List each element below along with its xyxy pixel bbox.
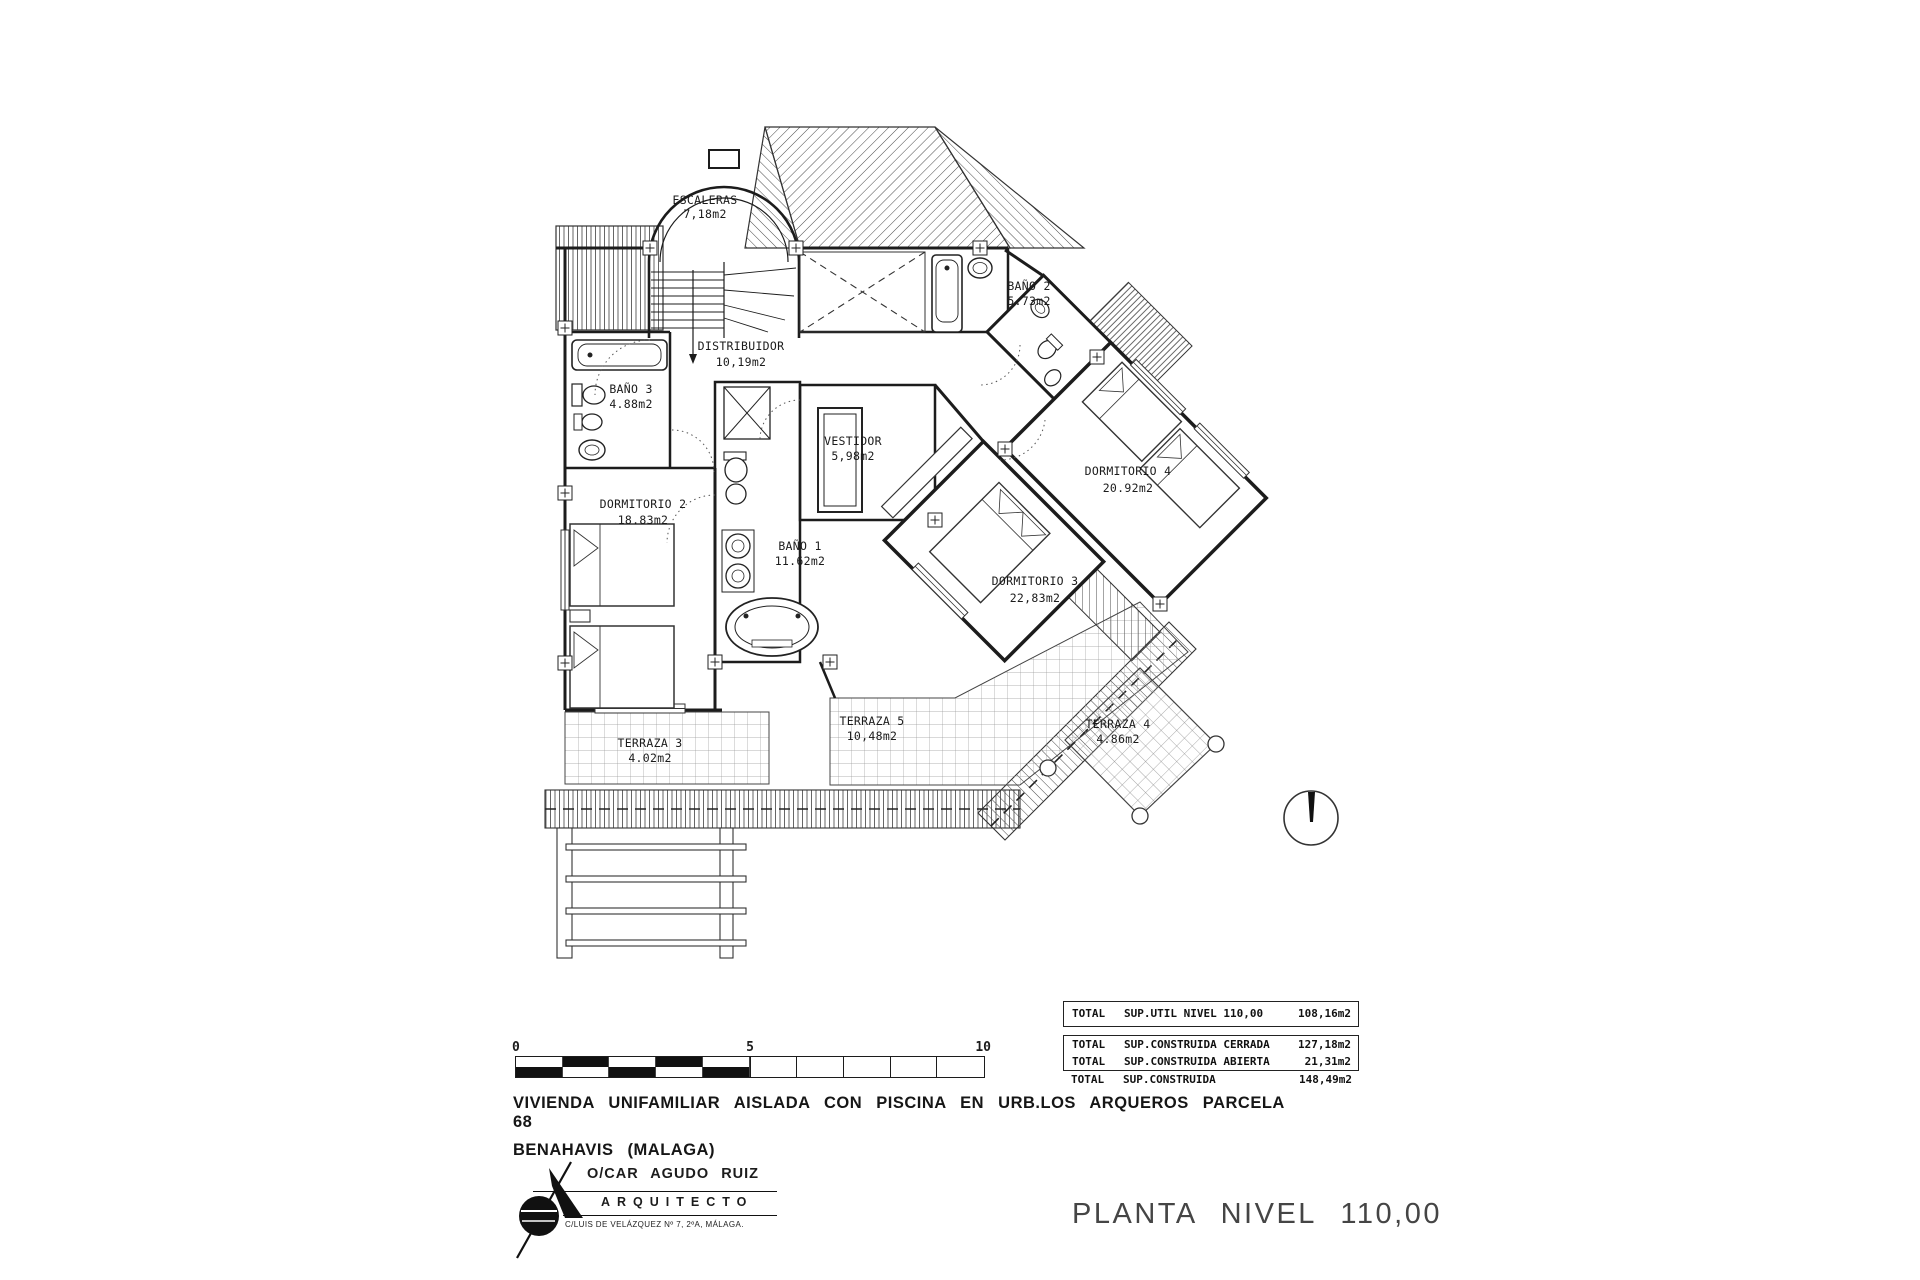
- sink-hall: [968, 258, 992, 278]
- void-opening: [800, 252, 925, 332]
- room-label-distribuidor: DISTRIBUIDOR: [698, 339, 785, 353]
- room-label-dormitorio-4: DORMITORIO 4: [1085, 464, 1172, 478]
- svg-text:5,98m2: 5,98m2: [831, 449, 874, 463]
- svg-text:10,48m2: 10,48m2: [847, 729, 898, 743]
- room-label-terraza-3: TERRAZA 3: [617, 736, 682, 750]
- scale-tick-0: 0: [512, 1040, 520, 1055]
- bathtub-hall: [932, 255, 962, 332]
- scale-bar: 0 5 10: [515, 1040, 985, 1090]
- sheet-title: PLANTA NIVEL 110,00: [1072, 1198, 1442, 1231]
- table-row: TOTAL SUP.CONSTRUIDA ABIERTA 21,31m2: [1064, 1053, 1358, 1070]
- room-label-dormitorio-2: DORMITORIO 2: [600, 497, 687, 511]
- architect-address: C/LUIS DE VELÁZQUEZ Nº 7, 2ºA, MÁLAGA.: [565, 1220, 744, 1229]
- north-indicator-icon: [1284, 791, 1338, 845]
- table-row: TOTAL SUP.UTIL NIVEL 110,00 108,16m2: [1064, 1002, 1358, 1026]
- dormitorio-2-beds: [570, 524, 674, 708]
- scale-bar-numbers: 0 5 10: [515, 1040, 985, 1056]
- room-label-escaleras: ESCALERAS: [672, 193, 737, 207]
- scale-tick-5: 5: [746, 1040, 754, 1055]
- svg-text:18.83m2: 18.83m2: [618, 513, 669, 527]
- drawing-sheet: { "plan": { "rooms": [ {"id":"escaleras"…: [0, 0, 1920, 1280]
- room-label-terraza-4: TERRAZA 4: [1085, 717, 1150, 731]
- table-row: TOTAL SUP.CONSTRUIDA CERRADA 127,18m2: [1064, 1036, 1358, 1053]
- hip-roof: [745, 127, 1084, 248]
- architect-role: ARQUITECTO: [601, 1195, 753, 1209]
- floor-plan-svg: ESCALERAS 7,18m2 DISTRIBUIDOR 10,19m2 BA…: [500, 100, 1380, 980]
- svg-text:11.62m2: 11.62m2: [775, 554, 826, 568]
- room-label-bano-2: BAÑO 2: [1007, 278, 1050, 293]
- scale-bar-graphic: [515, 1056, 985, 1078]
- room-label-bano-1: BAÑO 1: [778, 538, 821, 553]
- svg-text:4.86m2: 4.86m2: [1096, 732, 1139, 746]
- scale-tick-10: 10: [975, 1040, 991, 1055]
- scale-bar-checker: [516, 1057, 750, 1077]
- pergola: [557, 828, 746, 958]
- svg-text:22,83m2: 22,83m2: [1010, 591, 1061, 605]
- svg-text:7,18m2: 7,18m2: [683, 207, 726, 221]
- svg-text:4.02m2: 4.02m2: [628, 751, 671, 765]
- svg-text:20.92m2: 20.92m2: [1103, 481, 1154, 495]
- bano-1-fixtures: [722, 387, 818, 656]
- svg-text:10,19m2: 10,19m2: [716, 355, 767, 369]
- scale-bar-open-cells: [750, 1057, 985, 1077]
- area-summary-tables: TOTAL SUP.UTIL NIVEL 110,00 108,16m2 TOT…: [1063, 1001, 1359, 1088]
- architect-stamp: O/CAR AGUDO RUIZ ARQUITECTO C/LUIS DE VE…: [505, 1158, 777, 1270]
- svg-text:5.73m2: 5.73m2: [1007, 294, 1050, 308]
- svg-text:4.88m2: 4.88m2: [609, 397, 652, 411]
- total-util-table: TOTAL SUP.UTIL NIVEL 110,00 108,16m2: [1063, 1001, 1359, 1027]
- room-label-vestidor: VESTIDOR: [824, 434, 882, 448]
- project-title-line1: VIVIENDA UNIFAMILIAR AISLADA CON PISCINA…: [513, 1094, 1313, 1132]
- stamp-rule: [563, 1215, 777, 1216]
- stamp-rule: [533, 1191, 777, 1192]
- architect-logo-icon: [505, 1158, 587, 1262]
- room-label-dormitorio-3: DORMITORIO 3: [992, 574, 1079, 588]
- architect-name: O/CAR AGUDO RUIZ: [587, 1166, 759, 1182]
- table-row: TOTAL SUP.CONSTRUIDA 148,49m2: [1063, 1071, 1359, 1088]
- total-construida-table: TOTAL SUP.CONSTRUIDA CERRADA 127,18m2 TO…: [1063, 1035, 1359, 1071]
- room-label-bano-3: BAÑO 3: [609, 381, 652, 396]
- project-title: VIVIENDA UNIFAMILIAR AISLADA CON PISCINA…: [513, 1094, 1313, 1160]
- floor-plan: ESCALERAS 7,18m2 DISTRIBUIDOR 10,19m2 BA…: [500, 100, 1380, 980]
- room-label-terraza-5: TERRAZA 5: [839, 714, 904, 728]
